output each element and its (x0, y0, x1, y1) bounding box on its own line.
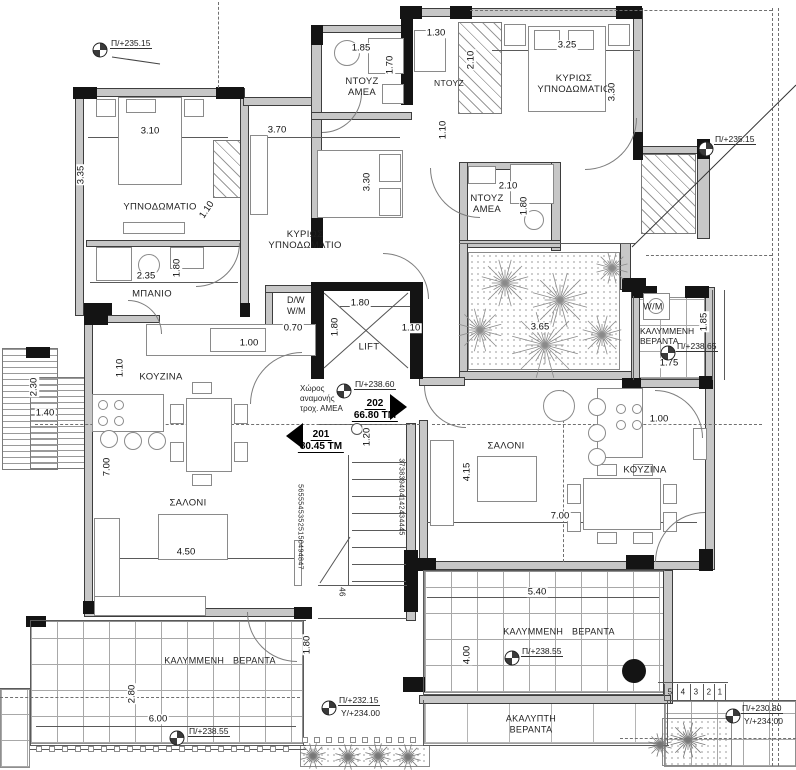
dim: 1.80 (302, 635, 312, 656)
room-label-shower-amea-top: ΝΤΟΥΖ ΑΜΕΑ (335, 76, 390, 98)
fu-shape (192, 382, 212, 394)
fu-shape (608, 24, 630, 46)
level-marker-icon (505, 651, 520, 666)
dim: 1.80 (519, 196, 529, 217)
fu-shape (379, 154, 401, 182)
ln-shape (252, 137, 400, 138)
level-marker-icon (699, 142, 714, 157)
tile-shape (0, 689, 30, 768)
ci-shape (148, 432, 166, 450)
floor-plan: ΥΠΝΟΔΩΜΑΤΙΟ ΚΥΡΙΩΣ ΥΠΝΟΔΩΜΑΤΙΟ ΚΥΡΙΩΣ ΥΠ… (0, 0, 796, 768)
bk-shape (26, 616, 46, 627)
ln-shape (423, 700, 424, 745)
plant-icon (335, 744, 361, 770)
fu-shape (170, 404, 184, 424)
room-label-laundry-center: D/W W/M (287, 295, 319, 317)
fu-shape (379, 188, 401, 216)
gy-shape (240, 97, 249, 317)
plant-icon (596, 252, 628, 284)
ln-shape (423, 694, 665, 695)
q-shape (322, 93, 362, 133)
ci-shape (616, 420, 626, 430)
bk-shape (699, 376, 713, 389)
plant-icon (648, 733, 672, 757)
level-label-top-left: Π/+235.15 (110, 38, 152, 49)
fu-shape (123, 222, 185, 234)
fu-shape (88, 746, 94, 752)
ci-shape (588, 424, 606, 442)
fu-shape (326, 737, 332, 743)
ln-shape (348, 455, 349, 585)
fu-shape (231, 746, 237, 752)
gy-shape (419, 695, 671, 704)
stair-numbers-lower-flight: 56555453525150494847 (297, 484, 304, 570)
ln-shape (703, 684, 704, 700)
level-marker-icon (170, 731, 185, 746)
ln-shape (459, 243, 635, 244)
ln-shape (30, 620, 31, 746)
plant-icon (395, 744, 421, 770)
ln-shape (664, 684, 665, 700)
q-shape (196, 243, 240, 287)
plant-icon (582, 315, 622, 355)
level-label-right: Π/+235.15 (714, 134, 756, 145)
ci-shape (616, 404, 626, 414)
q-shape (383, 253, 429, 299)
level-label-veranda-bl: Π/+238.55 (188, 726, 230, 737)
dim: 7.00 (102, 457, 112, 478)
dim: 3.30 (362, 172, 372, 193)
level-label-lobby: Π/+238.60 (354, 379, 396, 390)
ln-shape (318, 585, 407, 586)
dim: 3.30 (607, 82, 617, 103)
room-label-laundry-right: W/M (643, 302, 662, 313)
fu-shape (96, 99, 116, 117)
level-label-garden-y: Υ/+234.00 (340, 708, 382, 718)
gy-shape (459, 240, 561, 248)
fu-shape (250, 135, 268, 215)
fu-shape (234, 442, 248, 462)
fu-shape (192, 746, 198, 752)
ln-shape (36, 726, 296, 727)
entry-arrow-202-icon (390, 394, 407, 420)
gy-shape (84, 315, 93, 615)
dim: 3.65 (530, 322, 551, 332)
q-shape (585, 118, 637, 170)
room-label-kitchen-left: ΚΟΥΖΙΝΑ (139, 371, 182, 382)
fu-shape (179, 746, 185, 752)
fu-shape (283, 746, 289, 752)
dim: 3.25 (557, 40, 578, 50)
dim: 1.70 (385, 55, 395, 76)
fu-shape (205, 746, 211, 752)
dh-shape (646, 255, 772, 256)
level-marker-icon (93, 43, 108, 58)
ci-shape (114, 416, 124, 426)
dim: 1.10 (197, 199, 216, 221)
fu-shape (350, 737, 356, 743)
fu-shape (166, 746, 172, 752)
ci-shape (588, 448, 606, 466)
dim: 4.15 (462, 462, 472, 483)
dim: 1.80 (172, 258, 182, 279)
bk-shape (404, 550, 418, 612)
fu-shape (192, 474, 212, 486)
ci-shape (588, 398, 606, 416)
ext-step-number: 3 (694, 687, 699, 696)
level-marker-icon (661, 346, 676, 361)
ci-shape (98, 416, 108, 426)
room-label-uncovered-veranda: ΑΚΑΛΥΠΤΗ ΒΕΡΑΝΤΑ (491, 713, 571, 734)
fu-shape (504, 24, 526, 46)
dim: 1.80 (350, 298, 371, 308)
apartment-202-number: 202 (365, 398, 386, 410)
fu-shape (96, 247, 132, 281)
fu-shape (186, 398, 232, 472)
dim: 4.50 (176, 547, 197, 557)
gy-shape (75, 88, 84, 316)
room-label-kitchen-right: ΚΟΥΖΙΝΑ (623, 464, 666, 475)
fu-shape (218, 746, 224, 752)
level-marker-icon (337, 384, 352, 399)
q-shape (424, 386, 466, 428)
level-label-corner-y: Υ/+234.00 (743, 716, 785, 726)
dim: 3.10 (140, 126, 161, 136)
dv-shape (772, 8, 773, 766)
ln-shape (725, 684, 726, 700)
ln-shape (664, 700, 796, 701)
dim: 1.20 (362, 427, 372, 448)
dv-shape (218, 2, 219, 88)
dim: 1.80 (330, 317, 340, 338)
bk-shape (216, 87, 244, 99)
plant-icon (300, 743, 326, 769)
gy-shape (243, 97, 313, 106)
fu-shape (49, 746, 55, 752)
fu-shape (430, 440, 454, 526)
ext-step-number: 4 (681, 687, 686, 696)
fu-shape (234, 404, 248, 424)
ln-shape (352, 564, 406, 565)
dim: 0.70 (283, 323, 304, 333)
ext-step-number: 2 (707, 687, 712, 696)
fu-shape (410, 737, 416, 743)
ci-shape (632, 420, 642, 430)
plant-icon (458, 308, 502, 352)
room-label-master-center: ΚΥΡΙΩΣ ΥΠΝΟΔΩΜΑΤΙΟ (258, 229, 353, 251)
plant-icon (670, 722, 706, 758)
bk-shape (73, 87, 97, 99)
bk-shape (450, 6, 472, 19)
plant-icon (481, 259, 529, 307)
fu-shape (126, 99, 156, 113)
dim: 1.10 (438, 120, 448, 141)
room-label-shower-top-right: ΝΤΟΥΖ (434, 78, 464, 88)
fu-shape (127, 746, 133, 752)
ln-shape (423, 570, 665, 571)
level-marker-icon (322, 701, 337, 716)
fu-shape (663, 484, 677, 504)
ci-shape (543, 390, 575, 422)
apartment-201-number: 201 (311, 429, 332, 441)
entry-arrow-201-icon (286, 423, 303, 449)
dim: 1.40 (35, 408, 56, 418)
level-marker-icon (726, 709, 741, 724)
gy-shape (419, 561, 715, 570)
stair-numbers-upper-flight: 373839404142434445 (398, 458, 405, 535)
fu-shape (477, 456, 537, 502)
bk-shape (400, 6, 422, 19)
apartment-201-area: 80.45 ΤΜ (298, 441, 344, 453)
fu-shape (170, 442, 184, 462)
ln-shape (677, 684, 678, 700)
ln-shape (714, 684, 715, 700)
fu-shape (244, 746, 250, 752)
fu-shape (140, 746, 146, 752)
dim: 2.10 (466, 50, 476, 71)
fu-shape (101, 746, 107, 752)
gy-shape (697, 146, 710, 239)
fu-shape (597, 532, 617, 544)
bk-shape (311, 25, 323, 45)
ln-shape (0, 688, 30, 689)
bk-shape (616, 6, 642, 19)
ln-shape (712, 290, 713, 380)
fu-shape (597, 464, 617, 476)
fu-shape (583, 478, 661, 530)
dh-shape (0, 697, 300, 698)
dim: 4.00 (462, 645, 472, 666)
dim: 2.35 (136, 271, 157, 281)
fu-shape (270, 746, 276, 752)
fu-shape (62, 746, 68, 752)
dim: 5.40 (527, 587, 548, 597)
fu-shape (257, 746, 263, 752)
dim: 1.10 (401, 323, 422, 333)
gy-shape (419, 420, 428, 570)
ln-shape (423, 570, 424, 696)
fu-shape (153, 746, 159, 752)
dim: 1.10 (115, 358, 125, 379)
ci-shape (100, 430, 118, 448)
ln-shape (352, 547, 406, 548)
room-label-living-left: ΣΑΛΟΝΙ (169, 497, 206, 508)
bk-shape (403, 677, 425, 692)
dim: 1.85 (351, 43, 372, 53)
hat-shape (641, 154, 696, 234)
room-label-living-right: ΣΑΛΟΝΙ (487, 440, 524, 451)
bk-shape (240, 303, 250, 317)
dim: 1.00 (649, 414, 670, 424)
ci-shape (98, 400, 108, 410)
bk-shape (685, 286, 709, 298)
bk-shape (84, 313, 108, 325)
ci-shape (114, 400, 124, 410)
hat-shape (213, 140, 243, 198)
gy-shape (419, 377, 465, 386)
room-label-covered-veranda-br: ΚΑΛΥΜΜΕΝΗ ΒΕΡΑΝΤΑ (503, 627, 615, 638)
room-label-lift: LIFT (359, 341, 380, 352)
gy-shape (311, 25, 412, 33)
bk-shape (26, 347, 50, 358)
level-label-garden-p: Π/+232.15 (338, 695, 380, 706)
room-label-shower-amea-mid: ΝΤΟΥΖ ΑΜΕΑ (460, 193, 515, 215)
level-label-veranda-br: Π/+238.55 (521, 646, 563, 657)
fu-shape (633, 532, 653, 544)
ln-shape (318, 618, 407, 619)
bk-shape (633, 132, 643, 160)
ln-shape (658, 682, 728, 683)
ln-shape (352, 581, 406, 582)
fu-shape (36, 746, 42, 752)
bk-shape (626, 555, 654, 569)
fu-shape (184, 99, 204, 117)
ci-shape (124, 432, 142, 450)
q-shape (128, 300, 162, 334)
fu-shape (567, 484, 581, 504)
q-shape (250, 352, 302, 404)
room-label-bedroom-left: ΥΠΝΟΔΩΜΑΤΙΟ (123, 201, 196, 212)
level-label-veranda-right: Π/+238.65 (676, 341, 718, 352)
room-label-bathroom-left: ΜΠΑΝΙΟ (132, 288, 172, 299)
dim: 1.00 (239, 338, 260, 348)
dim: 3.35 (76, 165, 86, 186)
fu-shape (94, 596, 206, 616)
dim: 2.30 (29, 377, 39, 398)
dim: 6.00 (148, 714, 169, 724)
stair-number-46: 46 (338, 587, 347, 597)
ci-shape (632, 404, 642, 414)
plant-icon (365, 743, 391, 769)
bk-shape (622, 659, 646, 683)
dim: 2.80 (127, 684, 137, 705)
dim: 3.70 (267, 125, 288, 135)
room-label-covered-veranda-bl: ΚΑΛΥΜΜΕΝΗ ΒΕΡΑΝΤΑ (164, 656, 276, 667)
fu-shape (114, 746, 120, 752)
dim: 2.10 (498, 181, 519, 191)
fu-shape (75, 746, 81, 752)
dv-shape (778, 8, 779, 766)
dh-shape (470, 10, 772, 11)
ext-step-number: 5 (668, 687, 673, 696)
ln-shape (690, 684, 691, 700)
ext-step-number: 1 (718, 687, 723, 696)
ln-shape (633, 296, 634, 380)
dim: 1.30 (426, 28, 447, 38)
dh-shape (620, 738, 796, 739)
dim: 7.00 (550, 511, 571, 521)
fu-shape (338, 737, 344, 743)
level-label-corner-p: Π/+230.80 (741, 703, 783, 714)
ln-shape (724, 290, 725, 380)
fu-shape (398, 737, 404, 743)
ln-shape (423, 745, 669, 746)
dim: 1.85 (699, 312, 709, 333)
